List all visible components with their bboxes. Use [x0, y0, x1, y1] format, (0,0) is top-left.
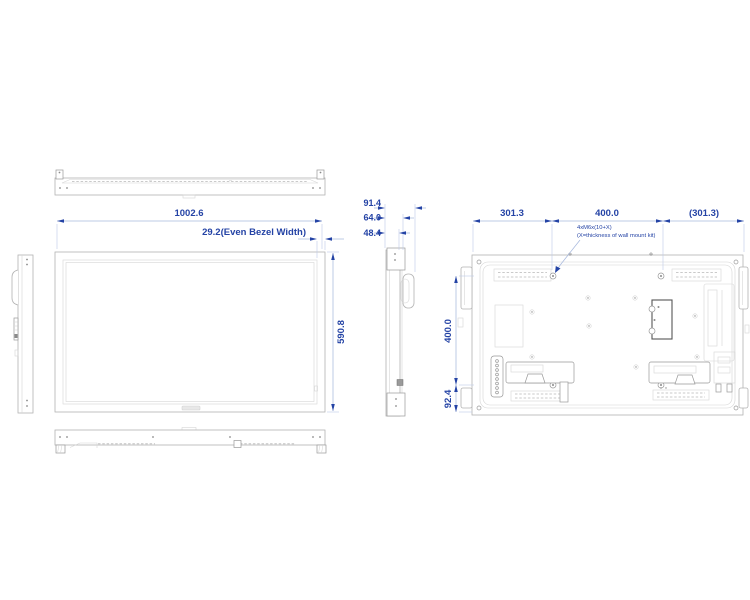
dim-depth-body-label: 48.4: [363, 228, 381, 238]
top-view: [55, 170, 325, 198]
dim-height-label: 590.8: [336, 320, 347, 344]
dim-depth-total-label: 91.4: [363, 198, 381, 208]
side-connector: [397, 380, 403, 386]
dim-right-offset-label: (301.3): [689, 208, 719, 219]
dim-width-label: 1002.6: [174, 208, 203, 219]
side-profile-view: [386, 248, 414, 416]
rear-speaker-right: [649, 362, 710, 384]
rear-view: [458, 252, 749, 415]
dim-bezel-label: 29.2(Even Bezel Width): [202, 227, 306, 238]
side-handle: [401, 274, 414, 308]
rear-terminal-strip: [491, 356, 503, 397]
rear-cable-cover: [560, 382, 568, 402]
mount-note-line1: 4xM6x(10+X): [577, 225, 612, 231]
front-logo-badge: [182, 406, 200, 410]
technical-drawing-page: 1002.6 29.2(Even Bezel Width) 590.8 91.4: [0, 0, 750, 600]
mount-note-line2: (X=thickness of wall mount kit): [577, 233, 656, 239]
dim-vesa-height-label: 400.0: [443, 319, 454, 343]
dim-depth-mount-label: 64.0: [363, 213, 381, 223]
dim-vesa-width-label: 400.0: [595, 208, 619, 219]
bottom-view: [55, 428, 326, 454]
left-side-view: [12, 255, 33, 413]
rear-switch-box: [649, 300, 672, 339]
rear-port-2: [727, 384, 732, 392]
drawing-svg: 1002.6 29.2(Even Bezel Width) 590.8 91.4: [0, 0, 750, 600]
rear-port-1: [716, 384, 721, 392]
dim-height: 590.8: [327, 252, 347, 412]
rear-speaker-left: [506, 362, 574, 383]
dim-bottom-offset-label: 92.4: [443, 389, 454, 408]
dim-left-offset-label: 301.3: [500, 208, 524, 219]
front-view: [55, 252, 325, 412]
